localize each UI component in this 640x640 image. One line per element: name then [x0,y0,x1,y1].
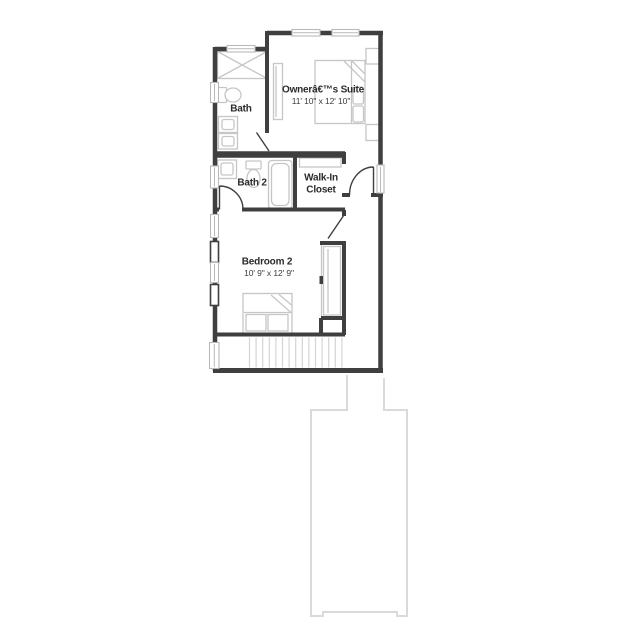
exterior-walls [215,31,383,373]
owner-pillow2-icon [353,106,364,122]
floor-plan: Ownerâ€™s Suite 11' 10" x 12' 10" Bath B… [0,0,640,640]
bedroom2-window4-icon [211,285,219,306]
closet-shelf-icon [300,158,342,167]
bedroom2-bed-lines-icon [244,295,292,314]
walk-in-closet-label-line1: Walk-In [304,173,338,185]
nightstand-icon [366,49,380,65]
staircase [250,338,342,368]
bath2-label: Bath 2 [237,178,266,189]
stair-treads [250,338,342,368]
bath-door-icon [257,133,270,152]
bedroom2-pillow-icon [246,315,266,332]
bedroom2-closet-interior-icon [324,247,341,316]
garage-outline [311,375,407,616]
bath2-sink-icon [221,163,233,175]
walk-in-closet-label: Walk-In Closet [304,173,338,196]
bedroom2-pillow2-icon [268,315,288,332]
toilet-bowl-icon [225,88,241,102]
bath-sink2-icon [222,137,234,147]
walls [213,31,383,373]
owner-suite-label: Ownerâ€™s Suite [282,85,364,96]
nightstand2-icon [366,125,380,141]
bedroom2-dimensions: 10' 9" x 12' 9" [244,268,294,278]
closet-door-tick [320,276,324,284]
owner-suite-door-icon [350,167,374,195]
walk-in-closet-label-line2: Closet [304,184,338,196]
side-window-lines [214,84,380,367]
bath2-toilet-tank-icon [246,161,261,169]
bedroom2-door-icon [328,215,344,239]
bath-label: Bath [230,104,251,115]
owner-suite-dimensions: 11' 10" x 12' 10" [292,96,350,106]
bath2-door-icon [220,186,244,210]
bedroom2-window2-icon [211,242,219,263]
bath-sink-icon [222,120,234,130]
bathtub-inner-icon [272,164,290,206]
bedroom2-label: Bedroom 2 [242,257,292,268]
lower-level-outline [311,375,407,616]
shower-x-icon [218,52,268,79]
